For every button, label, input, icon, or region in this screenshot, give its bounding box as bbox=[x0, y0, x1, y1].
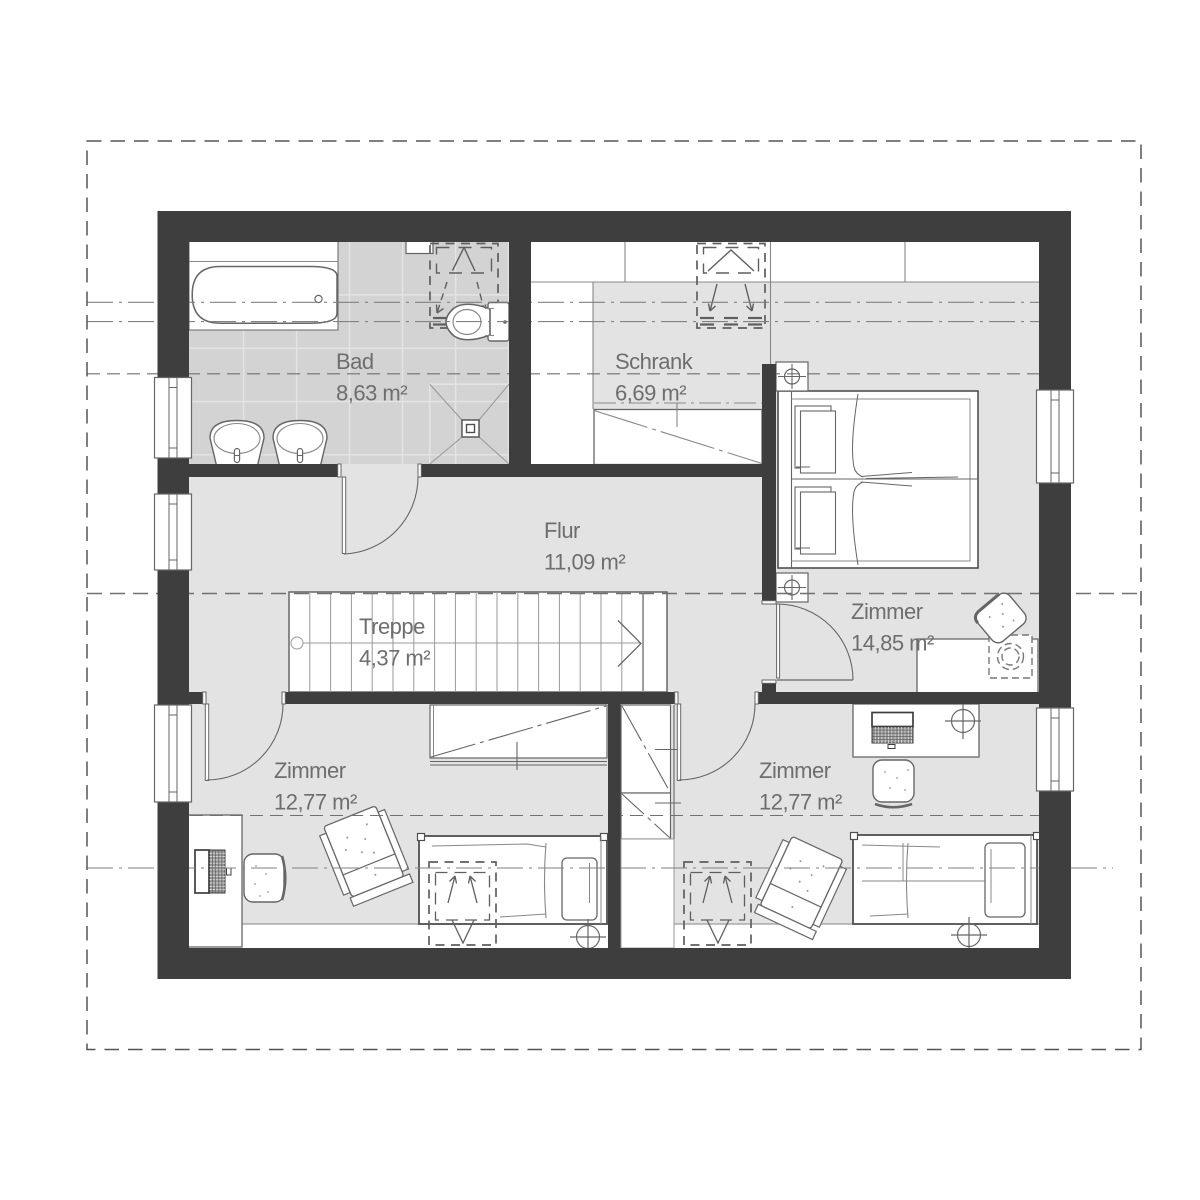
svg-text:Zimmer: Zimmer bbox=[274, 758, 346, 783]
svg-text:Treppe: Treppe bbox=[359, 614, 425, 639]
svg-text:12,77 m²: 12,77 m² bbox=[759, 790, 842, 815]
svg-text:Zimmer: Zimmer bbox=[759, 758, 831, 783]
svg-text:Schrank: Schrank bbox=[615, 349, 694, 374]
svg-text:4,37 m²: 4,37 m² bbox=[359, 646, 430, 671]
svg-text:Flur: Flur bbox=[544, 518, 580, 543]
svg-text:Bad: Bad bbox=[336, 349, 374, 374]
svg-text:8,63 m²: 8,63 m² bbox=[336, 381, 407, 406]
svg-text:12,77 m²: 12,77 m² bbox=[274, 790, 357, 815]
svg-text:6,69 m²: 6,69 m² bbox=[615, 381, 686, 406]
svg-text:Zimmer: Zimmer bbox=[851, 599, 923, 624]
svg-text:11,09 m²: 11,09 m² bbox=[544, 550, 625, 575]
svg-text:14,85 m²: 14,85 m² bbox=[851, 631, 934, 656]
